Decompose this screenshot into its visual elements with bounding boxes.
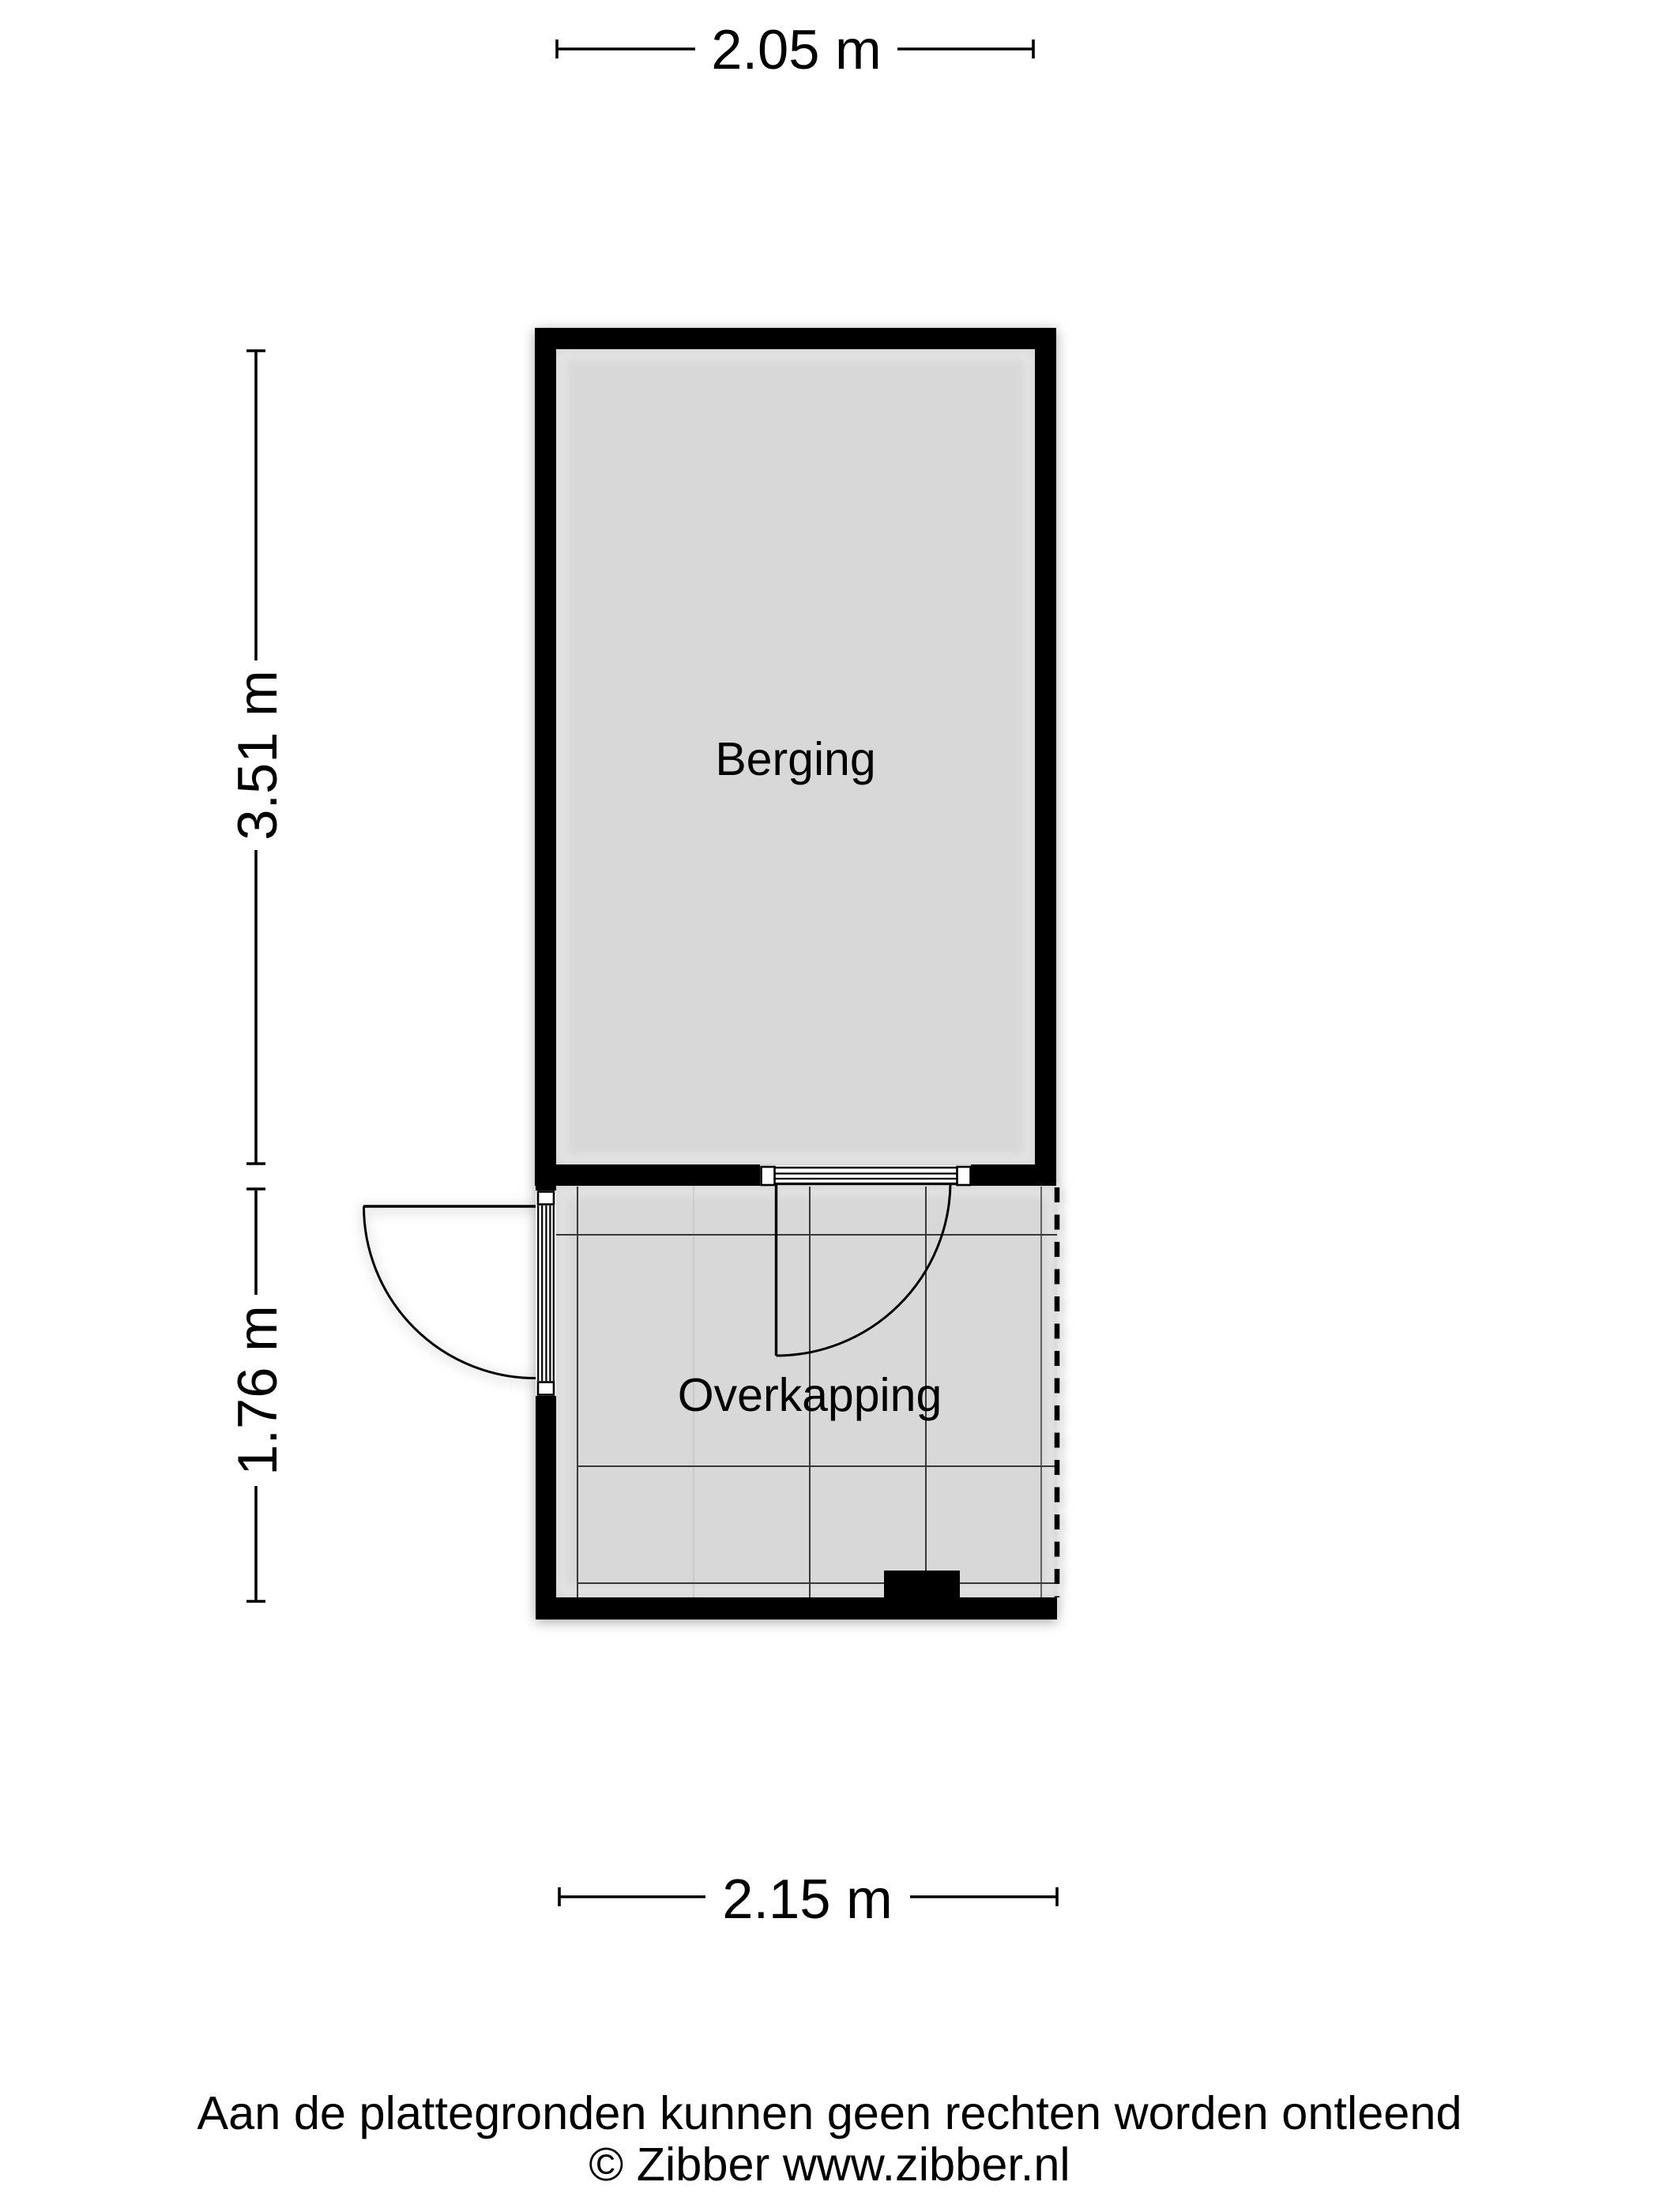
svg-text:2.15 m: 2.15 m: [722, 1868, 893, 1930]
svg-text:Overkapping: Overkapping: [678, 1369, 942, 1421]
svg-text:Berging: Berging: [715, 733, 875, 785]
svg-text:1.76 m: 1.76 m: [226, 1305, 288, 1476]
svg-text:Aan de plattegronden kunnen ge: Aan de plattegronden kunnen geen rechten…: [197, 2086, 1461, 2139]
svg-text:2.05 m: 2.05 m: [711, 18, 882, 81]
svg-text:3.51 m: 3.51 m: [226, 670, 288, 841]
svg-text:© Zibber www.zibber.nl: © Zibber www.zibber.nl: [589, 2138, 1070, 2191]
